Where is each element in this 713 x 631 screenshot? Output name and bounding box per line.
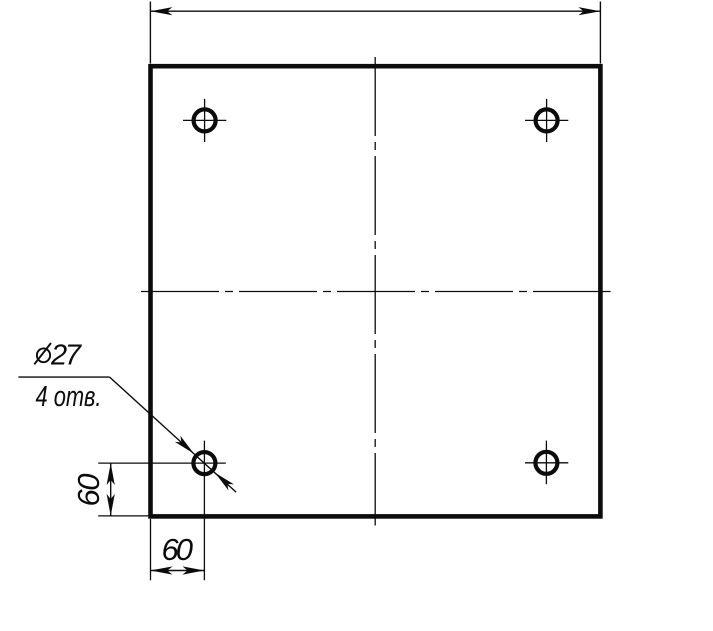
svg-text:27: 27 (50, 339, 83, 371)
svg-text:4 отв.: 4 отв. (36, 381, 102, 413)
svg-text:60: 60 (162, 532, 194, 567)
svg-text:60: 60 (71, 474, 106, 507)
